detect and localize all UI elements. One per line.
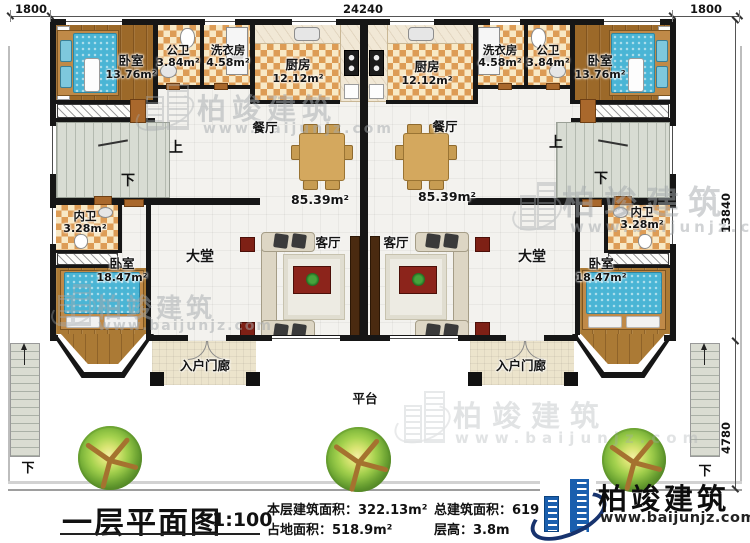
tree [326,427,391,492]
outdoor-stairs-left [10,343,40,457]
kitchen-sink [408,27,434,41]
watermark: 柏竣建筑 www.baijunjz.com [56,284,256,338]
plant-icon [306,273,319,286]
room-label-inner-bath: 内卫3.28m² [63,210,106,235]
porch-pillar [150,372,164,386]
dining-table [403,133,449,181]
stair-up-label: 上 [169,137,183,157]
stat-story-height: 层高：3.8m [434,519,510,538]
room-label-dining: 餐厅 [252,121,277,134]
window [205,19,235,25]
pillow [656,66,668,88]
cushion [425,233,441,249]
end-table [240,237,255,252]
window [292,19,336,25]
sofa [415,232,469,252]
room-label-living: 客厅 [315,236,340,249]
wall [360,19,368,341]
floor-plan-canvas: 柏竣建筑 www.baijunjz.com 柏竣建筑 www.baijunjz.… [0,0,750,543]
wall [50,250,122,253]
room-label-laundry: 洗衣房4.58m² [206,44,249,69]
watermark: 柏竣建筑 www.baijunjz.com [401,391,641,451]
stair-down-label: 下 [594,168,608,188]
room-label-dining: 餐厅 [432,120,457,133]
tree [78,426,142,490]
plant-icon [412,273,425,286]
outdoor-stair-down-label: 下 [21,457,34,476]
pillow [60,40,72,62]
dimension-top-center: 24240 [343,2,383,16]
wardrobe [594,104,669,118]
door [580,99,596,123]
stair-arrow-head [21,343,27,350]
room-label-laundry: 洗衣房4.58m² [478,44,521,69]
unit-area-label: 85.39m² [291,193,349,206]
wall [604,250,676,253]
room-label-living: 客厅 [383,236,408,249]
porch-pillar [564,372,578,386]
dim-extension [10,10,11,22]
porch-pillar [468,372,482,386]
room-label-public-bath: 公卫3.84m² [156,44,199,69]
wall [386,100,476,104]
room-label-kitchen: 厨房12.12m² [272,58,323,85]
room-label-bedroom: 卧室13.76m² [574,54,625,81]
window [670,126,676,174]
door [546,83,560,90]
dimension-top-right: 1800 [690,2,722,16]
blanket [628,58,644,92]
room-label-hall: 大堂 [518,250,546,265]
stair-down-label: 下 [121,170,135,190]
cushion [443,233,459,249]
dimension-line-top [10,16,740,17]
room-label-bedroom-lower: 卧室18.47m² [96,257,147,284]
pillow [588,316,622,328]
wall [200,19,204,89]
stair-arrow [24,349,25,365]
dimension-line-right [735,20,736,490]
wall [50,198,96,205]
dim-extension [672,10,673,22]
dim-extension [739,10,740,22]
door [94,196,112,205]
tv-cabinet [370,236,380,336]
pillow [60,66,72,88]
room-label-porch: 入户门廊 [180,359,230,372]
pillow [626,316,660,328]
tv-cabinet [350,236,360,336]
end-table [475,237,490,252]
door [498,83,512,90]
window [272,336,340,341]
dimension-right-upper: 13840 [719,193,733,233]
wardrobe [57,104,132,118]
stat-floor-area: 本层建筑面积：322.13m² [267,499,427,518]
stair-up-label: 上 [549,132,563,152]
room-label-bedroom-lower: 卧室18.47m² [575,257,626,284]
stair-arrow [704,349,705,365]
wall [664,335,676,341]
dimension-right-lower: 4780 [719,422,733,454]
window [604,19,660,25]
watermark-url: www.baijunjz.com [98,318,273,334]
kitchen-sink [294,27,320,41]
cushion [291,233,307,249]
brand-logo-icon [143,84,191,132]
chair [303,180,318,190]
company-logo-icon [540,473,596,537]
toilet [74,234,88,249]
room-label-hall: 大堂 [186,250,214,265]
pillow [656,40,668,62]
window [66,19,122,25]
room-label-bedroom: 卧室13.76m² [105,54,156,81]
brand-logo-icon [518,182,558,232]
window [390,19,434,25]
dim-extension [50,10,51,22]
stair-arrow-head [701,343,707,350]
watermark-url: www.baijunjz.com [455,429,704,447]
stove [369,50,384,76]
room-label-kitchen: 厨房12.12m² [401,60,452,87]
porch-pillar [246,372,260,386]
wall [118,205,122,250]
dining-table [299,133,345,181]
company-url: www.baijunjz.com [600,510,750,526]
watermark-url: www.baijunjz.com [203,121,394,137]
brand-logo-icon [401,391,447,445]
stove [344,50,359,76]
room-label-public-bath: 公卫3.84m² [526,44,569,69]
room-label-porch: 入户门廊 [496,359,546,372]
platform-label: 平台 [352,392,377,405]
brand-logo-icon [56,284,92,328]
plan-title: 一层平面图 [62,498,222,542]
window [490,19,520,25]
unit-area-label: 85.39m² [418,190,476,203]
door [124,199,144,207]
title-underline [60,533,260,535]
platform-edge-right [740,46,742,483]
stat-footprint-area: 占地面积：518.9m² [267,519,392,538]
window [50,126,56,174]
blanket [84,58,100,92]
room-label-inner-bath: 内卫3.28m² [620,206,663,231]
window [390,336,458,341]
window [50,208,56,244]
wall [544,335,578,341]
wall [473,19,478,104]
chair [325,180,340,190]
cushion [273,233,289,249]
dimension-top-left: 1800 [15,2,47,16]
plan-scale: 1:100 [212,509,272,531]
wall [468,335,506,341]
